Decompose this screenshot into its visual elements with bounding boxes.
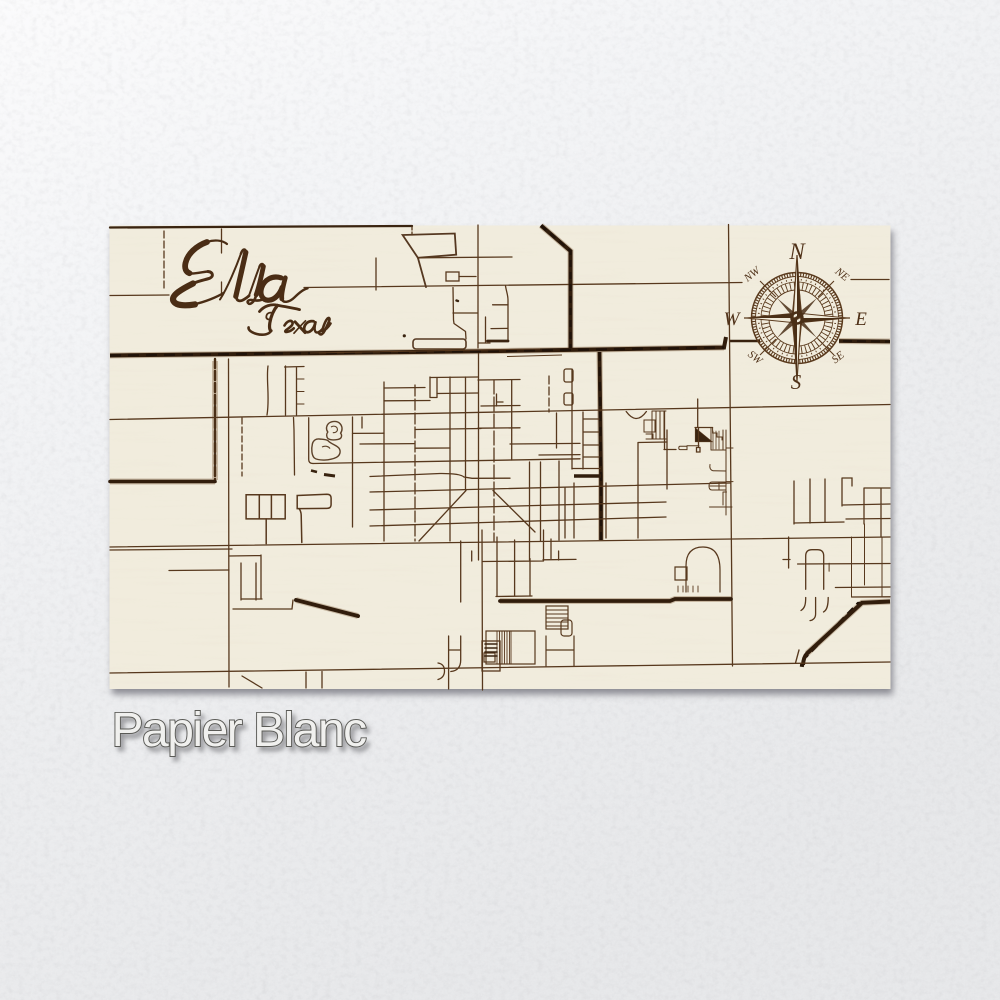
svg-text:N: N (788, 239, 806, 264)
svg-text:E: E (854, 309, 867, 330)
svg-text:S: S (791, 370, 802, 394)
svg-text:Papier Blanc: Papier Blanc (112, 704, 367, 757)
svg-text:W: W (724, 309, 742, 330)
